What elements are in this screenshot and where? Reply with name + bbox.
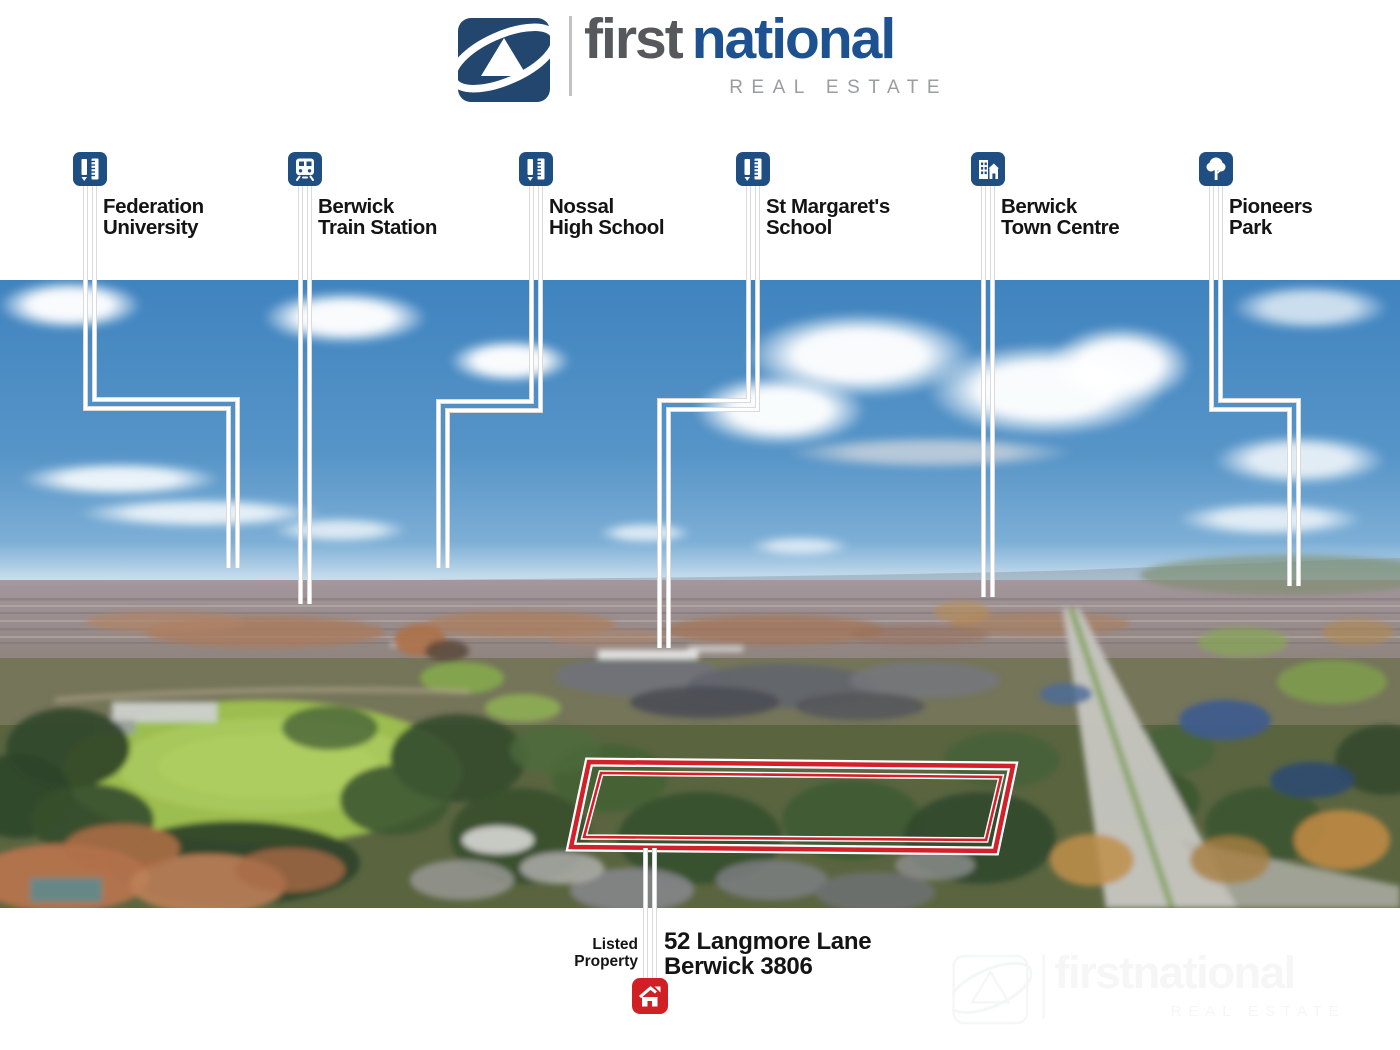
leader-lines	[0, 0, 1400, 1050]
listed-property-label: Listed Property	[574, 937, 638, 970]
property-address: 52 Langmore Lane Berwick 3806	[664, 929, 871, 979]
listing-location-poster: firstnational REAL ESTATE Drive4min Fede…	[0, 0, 1400, 1050]
listed-property-house-icon	[632, 978, 668, 1014]
